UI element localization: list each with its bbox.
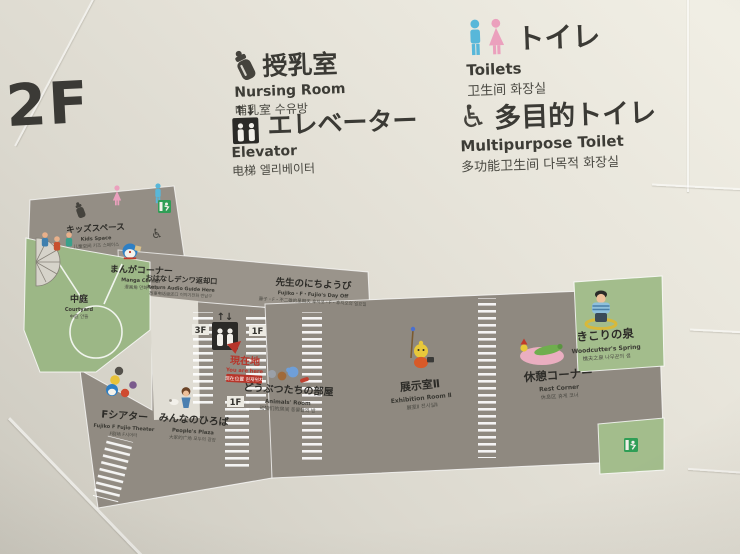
f-theater-characters [106, 367, 137, 397]
svg-text:↑↓: ↑↓ [217, 312, 234, 323]
svg-text:中庭 안뜰: 中庭 안뜰 [70, 313, 89, 320]
map-wheelchair-icon: ♿ [151, 227, 163, 242]
stairs-hatch [225, 398, 249, 470]
svg-text:1F: 1F [252, 327, 264, 337]
floor-map: 3F 1F 1F ↑↓ 現在地 You are here 现在位置 현재위치 [0, 0, 740, 554]
stair-tag-1f: 1F [227, 396, 244, 408]
stair-tag-3f: 3F [192, 324, 209, 336]
stair-tag-1f: 1F [249, 325, 266, 337]
map-exit-sign-icon [624, 438, 638, 452]
floor-guide-sign-photo: 2F 授乳室 Nursing Room 哺乳室 수유방 ↑↓ [0, 0, 740, 554]
stairs-hatch [478, 298, 496, 458]
svg-text:Courtyard: Courtyard [65, 307, 94, 313]
map-exit-sign-icon [158, 200, 171, 213]
svg-text:3F: 3F [195, 326, 207, 336]
svg-text:1F: 1F [230, 398, 242, 408]
svg-text:中庭: 中庭 [70, 293, 89, 305]
